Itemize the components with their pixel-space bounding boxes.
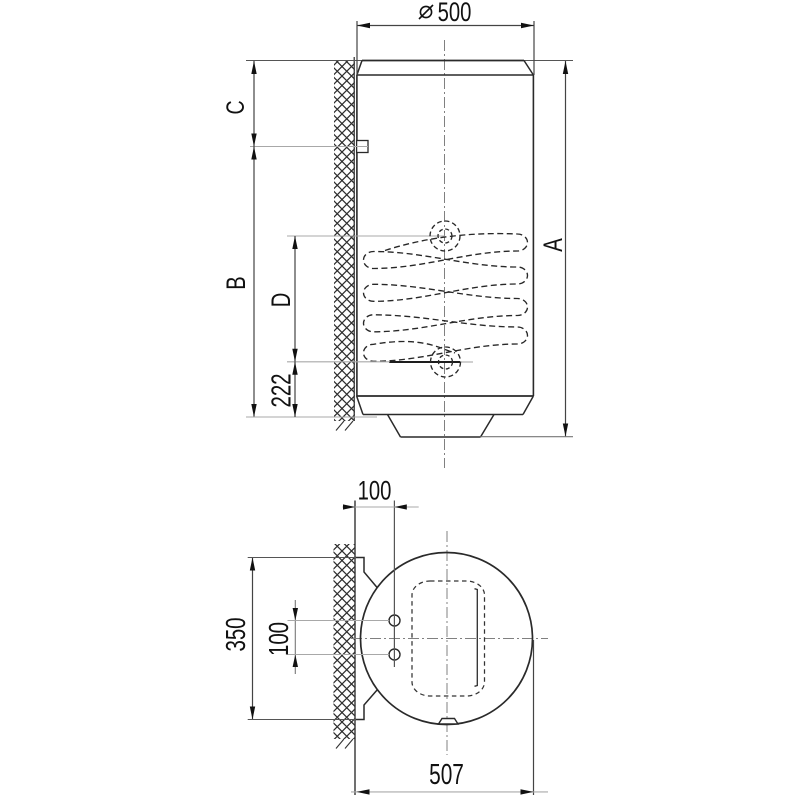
svg-text:350: 350 bbox=[221, 617, 252, 651]
svg-text:500: 500 bbox=[438, 0, 472, 28]
svg-text:A: A bbox=[538, 238, 569, 252]
svg-text:100: 100 bbox=[358, 476, 392, 507]
svg-text:507: 507 bbox=[429, 759, 464, 791]
svg-text:C: C bbox=[222, 100, 250, 114]
svg-text:B: B bbox=[221, 276, 252, 290]
svg-text:222: 222 bbox=[267, 373, 298, 407]
svg-text:D: D bbox=[266, 293, 297, 308]
svg-text:100: 100 bbox=[264, 622, 295, 656]
